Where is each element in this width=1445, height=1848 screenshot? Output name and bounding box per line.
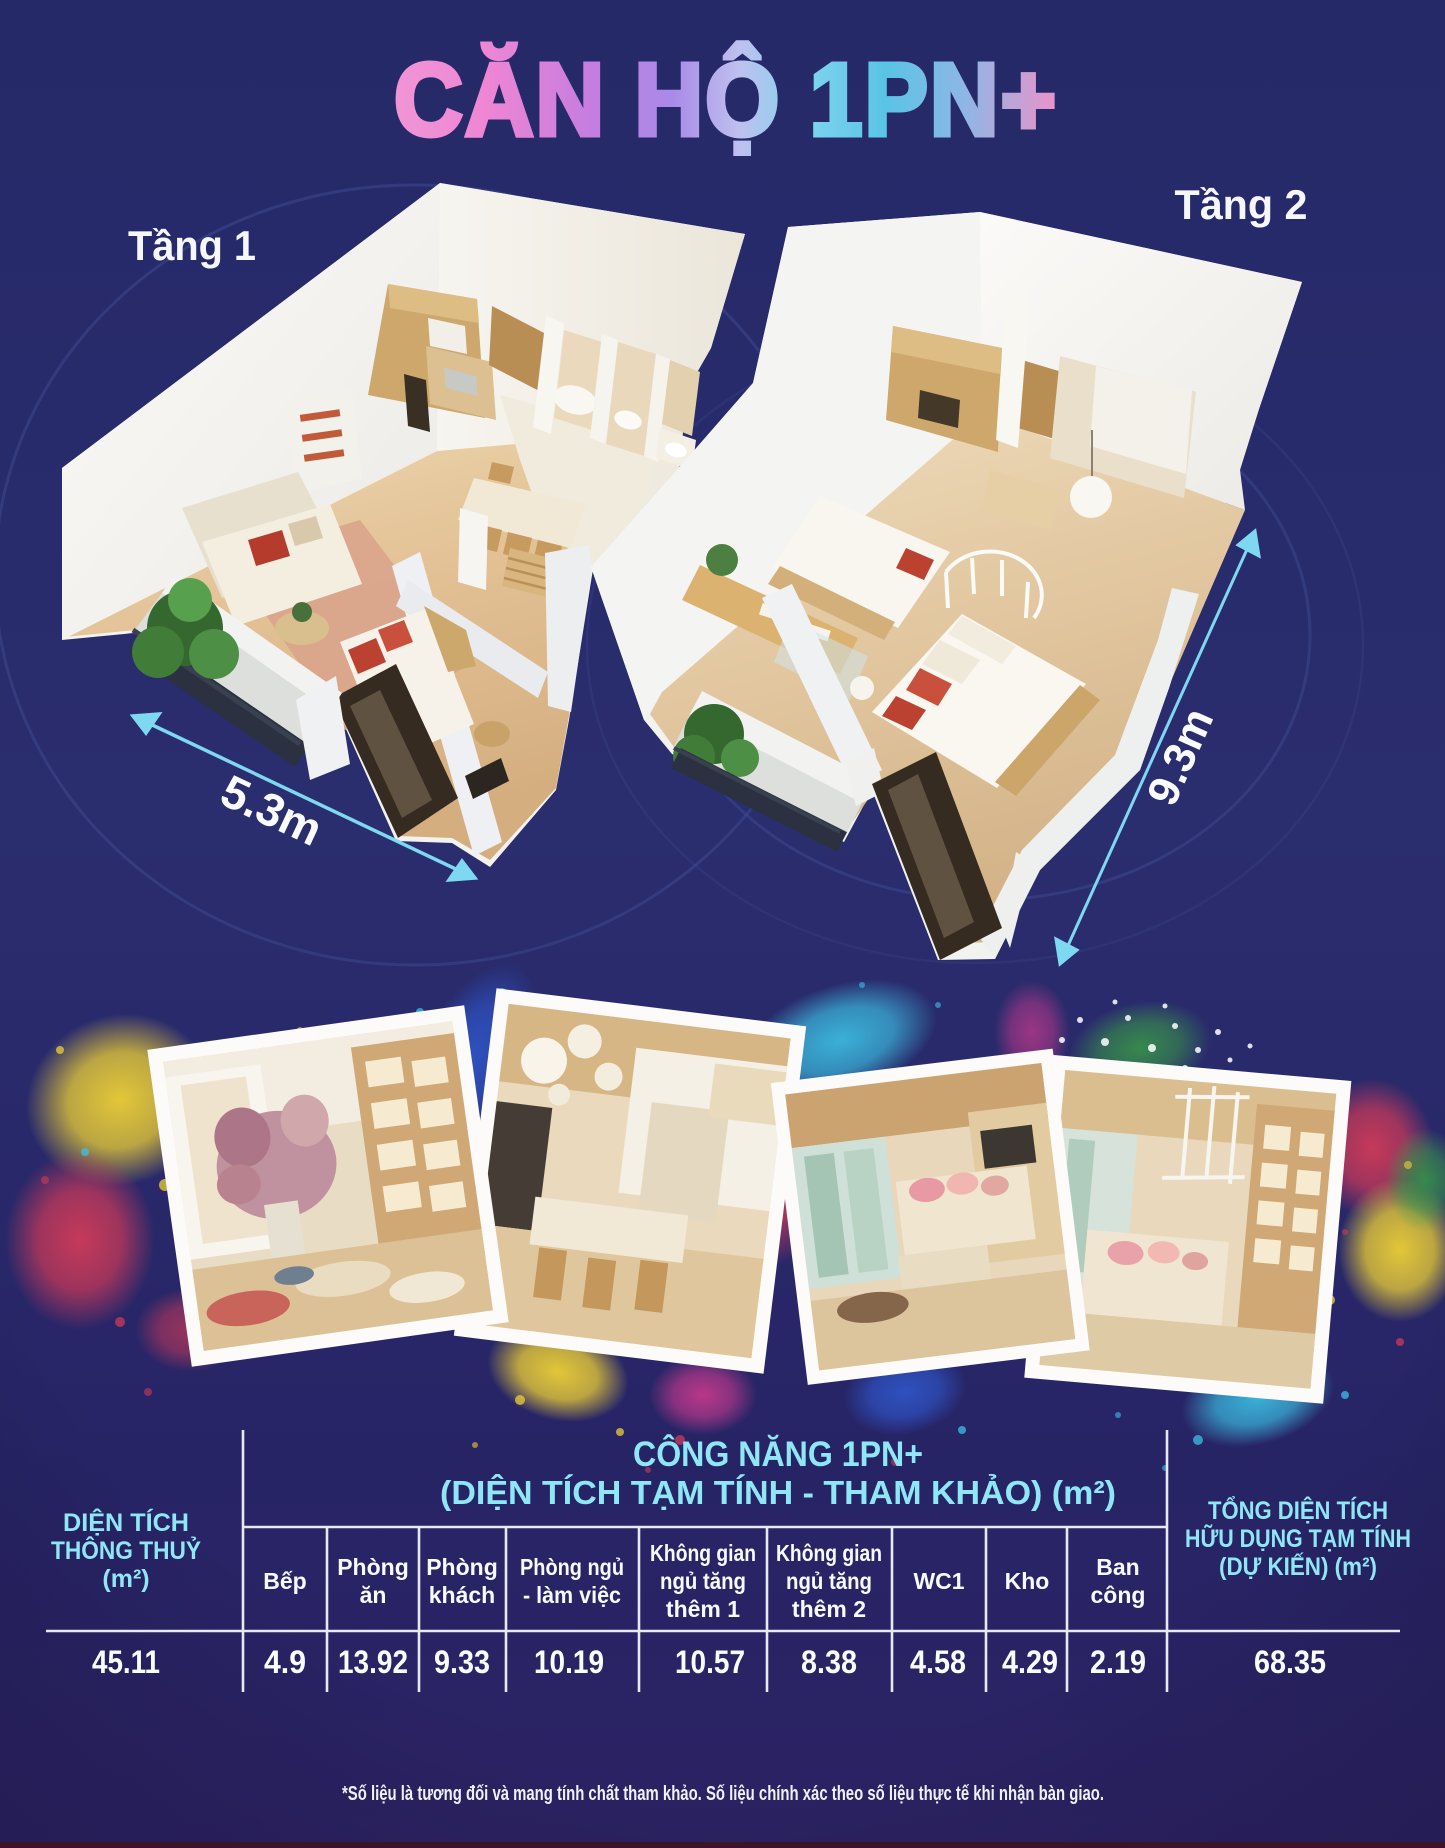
svg-text:Ban: Ban <box>1096 1554 1139 1580</box>
svg-text:Phòng ngủ: Phòng ngủ <box>520 1554 624 1580</box>
svg-text:Bếp: Bếp <box>263 1568 306 1594</box>
svg-text:Không gian: Không gian <box>650 1540 756 1566</box>
svg-text:CÔNG NĂNG 1PN+: CÔNG NĂNG 1PN+ <box>633 1434 923 1474</box>
svg-text:WC1: WC1 <box>913 1568 964 1594</box>
svg-text:9.33: 9.33 <box>434 1644 490 1680</box>
svg-text:ngủ tăng: ngủ tăng <box>786 1568 872 1594</box>
svg-text:TỔNG DIỆN TÍCH: TỔNG DIỆN TÍCH <box>1208 1495 1388 1525</box>
svg-text:THÔNG THUỶ: THÔNG THUỶ <box>51 1535 201 1565</box>
svg-text:4.9: 4.9 <box>264 1644 306 1680</box>
svg-text:công: công <box>1091 1582 1146 1608</box>
svg-text:45.11: 45.11 <box>92 1644 160 1680</box>
svg-text:khách: khách <box>429 1582 495 1608</box>
svg-text:thêm 2: thêm 2 <box>792 1596 866 1622</box>
svg-text:Phòng: Phòng <box>337 1554 409 1580</box>
svg-text:ăn: ăn <box>360 1582 387 1608</box>
svg-text:13.92: 13.92 <box>338 1644 408 1680</box>
svg-text:(DỰ KIẾN) (m²): (DỰ KIẾN) (m²) <box>1219 1552 1377 1581</box>
svg-text:- làm việc: - làm việc <box>523 1582 621 1608</box>
svg-text:HỮU DỤNG TẠM TÍNH: HỮU DỤNG TẠM TÍNH <box>1185 1523 1411 1553</box>
svg-text:(DIỆN TÍCH TẠM TÍNH - THAM KHẢ: (DIỆN TÍCH TẠM TÍNH - THAM KHẢO) (m²) <box>440 1474 1116 1511</box>
svg-text:Tầng 1: Tầng 1 <box>128 222 256 269</box>
svg-text:Tầng 2: Tầng 2 <box>1175 181 1308 228</box>
svg-text:(m²): (m²) <box>102 1565 149 1593</box>
svg-text:*Số liệu là tương đối và mang: *Số liệu là tương đối và mang tính chất … <box>342 1782 1104 1805</box>
svg-text:Không gian: Không gian <box>776 1540 882 1566</box>
svg-text:2.19: 2.19 <box>1090 1644 1146 1680</box>
svg-text:68.35: 68.35 <box>1254 1644 1326 1680</box>
svg-text:CĂN HỘ 1PN+: CĂN HỘ 1PN+ <box>394 42 1058 157</box>
svg-text:10.57: 10.57 <box>675 1644 745 1680</box>
svg-text:ngủ tăng: ngủ tăng <box>660 1568 746 1594</box>
svg-text:Kho: Kho <box>1005 1568 1050 1594</box>
svg-text:thêm 1: thêm 1 <box>666 1596 740 1622</box>
svg-text:4.29: 4.29 <box>1002 1644 1058 1680</box>
svg-text:Phòng: Phòng <box>426 1554 498 1580</box>
svg-text:4.58: 4.58 <box>910 1644 966 1680</box>
svg-text:DIỆN TÍCH: DIỆN TÍCH <box>63 1507 189 1537</box>
svg-text:10.19: 10.19 <box>534 1644 604 1680</box>
svg-text:8.38: 8.38 <box>801 1644 857 1680</box>
